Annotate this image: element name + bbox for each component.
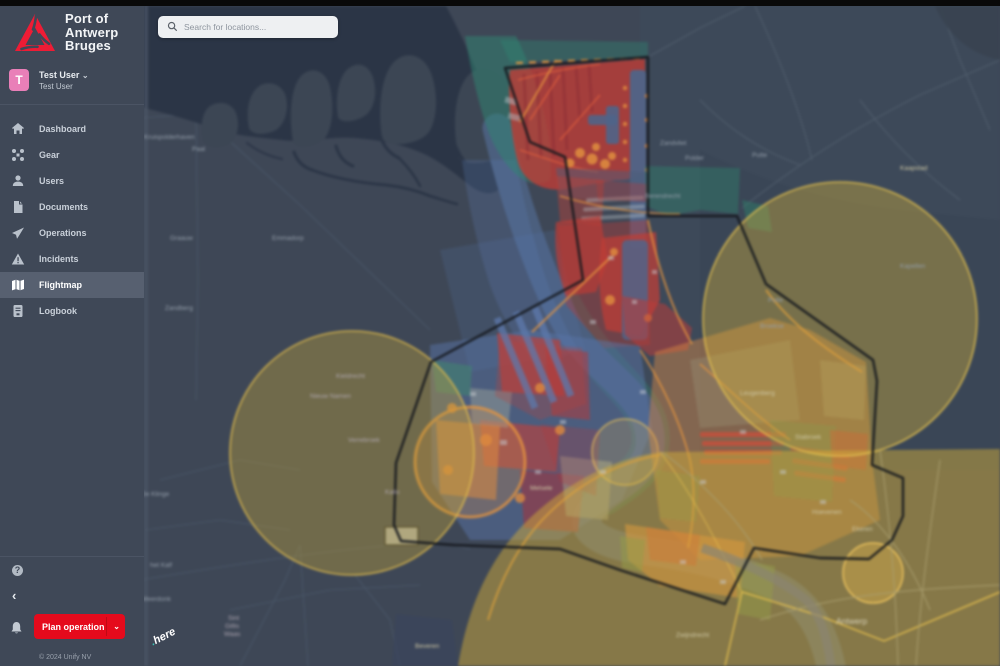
svg-text:Ekeren: Ekeren	[852, 526, 873, 533]
svg-text:Hoevenen: Hoevenen	[812, 509, 842, 516]
svg-text:Kallo: Kallo	[385, 489, 400, 496]
svg-text:Sint: Sint	[228, 615, 239, 622]
svg-text:Polder: Polder	[685, 155, 705, 162]
svg-text:Melsele: Melsele	[530, 485, 553, 492]
svg-text:Zandberg: Zandberg	[165, 305, 193, 312]
svg-text:Kieldrecht: Kieldrecht	[336, 373, 365, 380]
svg-text:Broekse: Broekse	[760, 323, 784, 330]
svg-text:Waas: Waas	[224, 631, 241, 638]
svg-text:Nieuw Namen: Nieuw Namen	[310, 393, 351, 400]
svg-text:Emmadorp: Emmadorp	[272, 235, 304, 242]
svg-text:het Kalf: het Kalf	[150, 562, 172, 569]
svg-text:Meerdonk: Meerdonk	[142, 596, 172, 603]
svg-text:Stabroek: Stabroek	[795, 434, 822, 441]
svg-text:Gillis: Gillis	[225, 623, 240, 630]
svg-text:Putte: Putte	[768, 297, 784, 304]
svg-text:Zwijndrecht: Zwijndrecht	[676, 632, 709, 639]
svg-text:Kaapstad: Kaapstad	[900, 165, 928, 172]
svg-text:Leugenberg: Leugenberg	[740, 390, 775, 397]
svg-text:Graauw: Graauw	[170, 235, 193, 242]
svg-text:Berendrecht: Berendrecht	[645, 193, 681, 200]
svg-text:Zandvliet: Zandvliet	[660, 140, 687, 147]
svg-text:Beveren: Beveren	[415, 643, 440, 650]
svg-text:De Klinge: De Klinge	[141, 491, 170, 498]
svg-text:Kruispolderhaven: Kruispolderhaven	[144, 134, 195, 141]
svg-text:Kapellen: Kapellen	[900, 263, 926, 270]
svg-text:Paal: Paal	[192, 146, 206, 153]
svg-text:Antwerp: Antwerp	[836, 616, 867, 626]
svg-text:Putte: Putte	[752, 152, 768, 159]
svg-text:Verrebroek: Verrebroek	[348, 437, 381, 444]
